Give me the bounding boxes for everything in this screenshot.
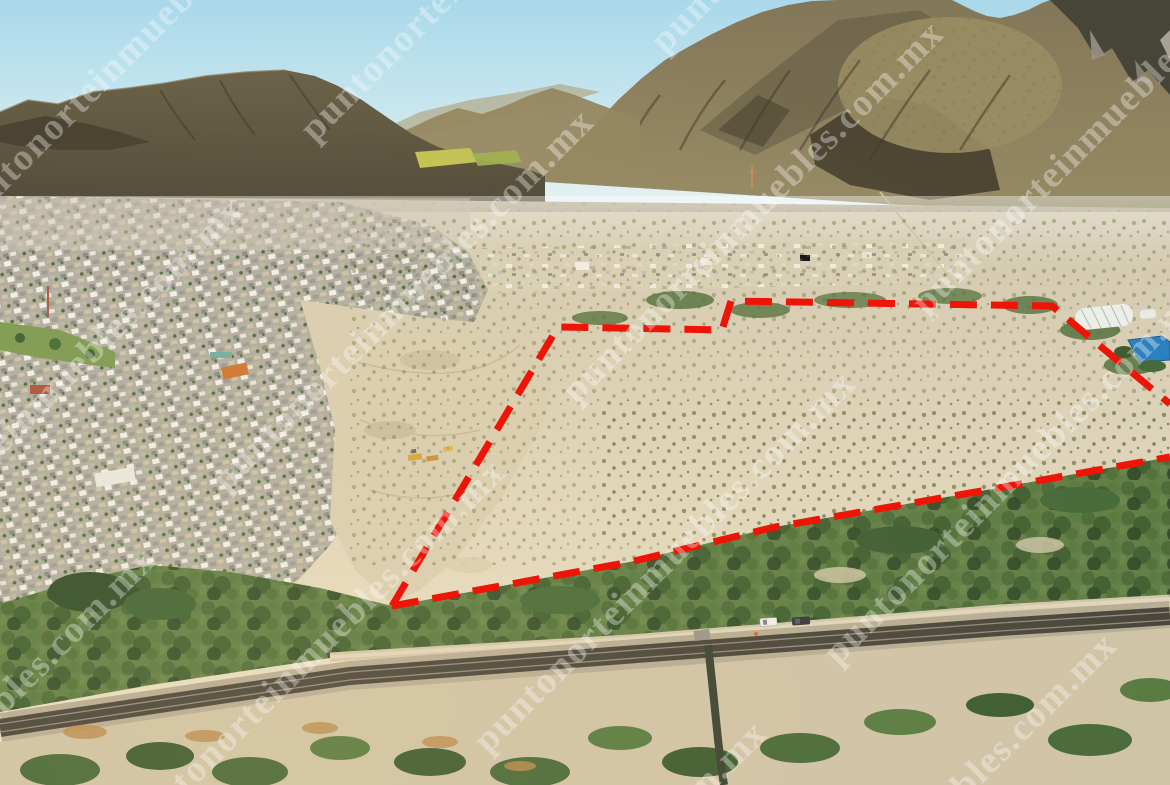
aerial-photo: puntonorteinmuebles.com.mxpuntonorteinmu… (0, 0, 1170, 785)
photo-canvas: puntonorteinmuebles.com.mxpuntonorteinmu… (0, 0, 1170, 785)
